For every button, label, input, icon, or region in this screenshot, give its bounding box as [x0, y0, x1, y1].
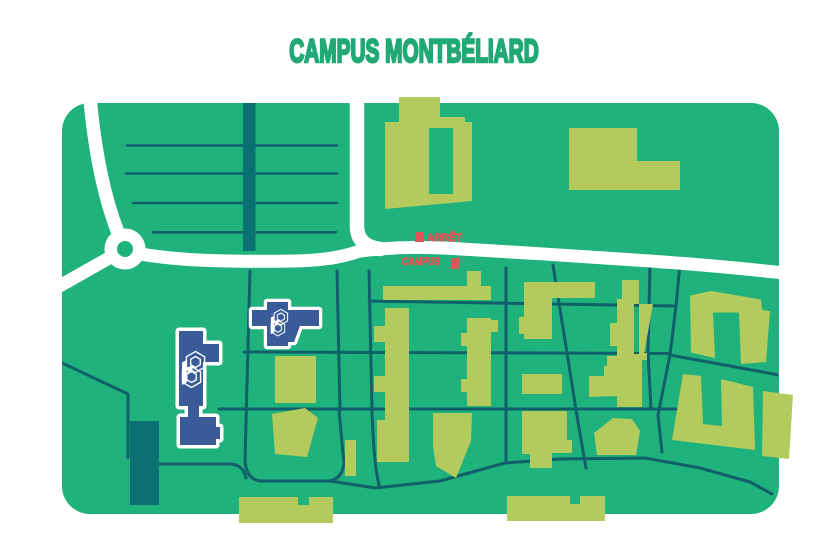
svg-text:CAMPUS MONTBÉLIARD: CAMPUS MONTBÉLIARD — [289, 32, 538, 69]
svg-text:ARRÊT: ARRÊT — [427, 231, 463, 244]
svg-text:CAMPUS: CAMPUS — [402, 256, 441, 268]
